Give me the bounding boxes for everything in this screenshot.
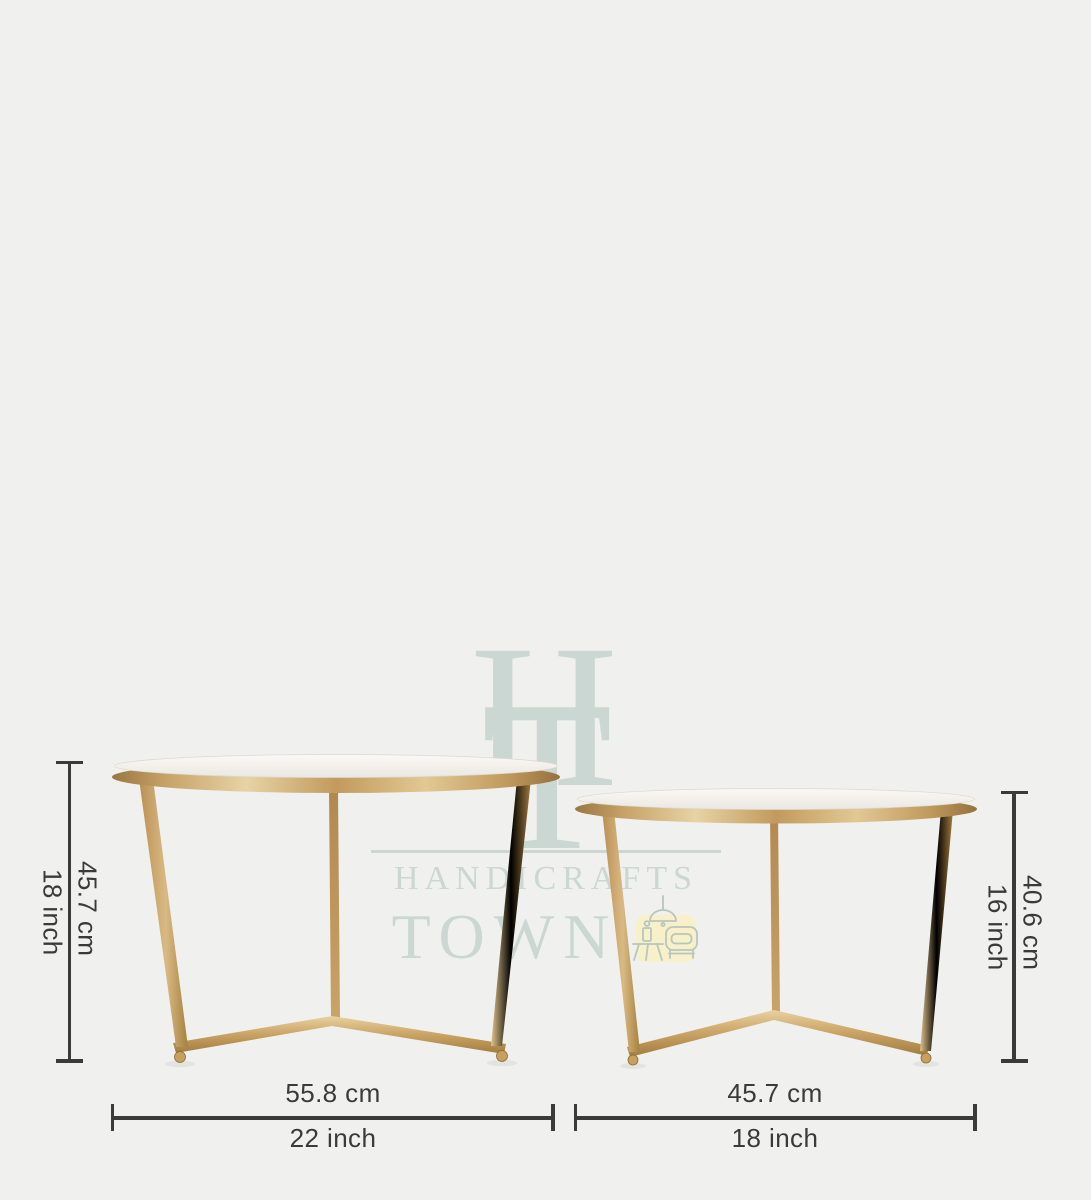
dimension-line-small-height <box>1012 792 1016 1062</box>
label-large-diameter-cm: 55.8 cm <box>223 1079 443 1108</box>
label-large-height-cm: 45.7 cm <box>73 861 100 956</box>
dimension-cap <box>1001 791 1028 795</box>
dimension-cap <box>574 1104 578 1131</box>
label-large-height-inch: 18 inch <box>38 869 65 956</box>
table-large-foot <box>175 1052 186 1063</box>
table-small-right-leg <box>920 810 953 1051</box>
nesting-tables-photo <box>0 0 1091 1200</box>
table-small-marble-top <box>578 789 975 810</box>
dimension-cap <box>551 1104 555 1131</box>
table-small-left-leg <box>602 810 640 1052</box>
dimension-cap <box>111 1104 115 1131</box>
label-small-height-cm: 40.6 cm <box>1018 875 1045 970</box>
table-large-left-leg <box>139 779 188 1047</box>
table-small-base-right <box>774 1010 929 1056</box>
table-large-foot <box>497 1051 508 1062</box>
table-small-base-left <box>627 1010 774 1057</box>
table-large-base-left <box>173 1016 332 1053</box>
dimension-cap <box>973 1104 977 1131</box>
dimension-line-large-diameter <box>112 1116 553 1120</box>
label-small-diameter-inch: 18 inch <box>665 1124 885 1153</box>
table-large-marble-top <box>115 755 558 778</box>
table-small <box>575 789 977 1070</box>
dimension-cap <box>1001 1059 1028 1063</box>
label-small-diameter-cm: 45.7 cm <box>665 1079 885 1108</box>
product-dimension-image: H T HAN <box>0 0 1091 1200</box>
table-small-center-leg <box>770 812 780 1014</box>
dimension-line-small-diameter <box>575 1116 975 1120</box>
table-large-right-leg <box>491 779 531 1046</box>
table-small-foot <box>921 1053 931 1063</box>
dimension-cap <box>56 1059 83 1063</box>
dimension-line-large-height <box>68 762 72 1062</box>
table-small-foot <box>628 1055 638 1065</box>
table-large <box>112 755 560 1068</box>
table-large-center-leg <box>329 788 340 1020</box>
table-large-base-right <box>332 1016 506 1054</box>
label-small-height-inch: 16 inch <box>983 884 1010 971</box>
dimension-cap <box>56 761 83 765</box>
label-large-diameter-inch: 22 inch <box>223 1124 443 1153</box>
